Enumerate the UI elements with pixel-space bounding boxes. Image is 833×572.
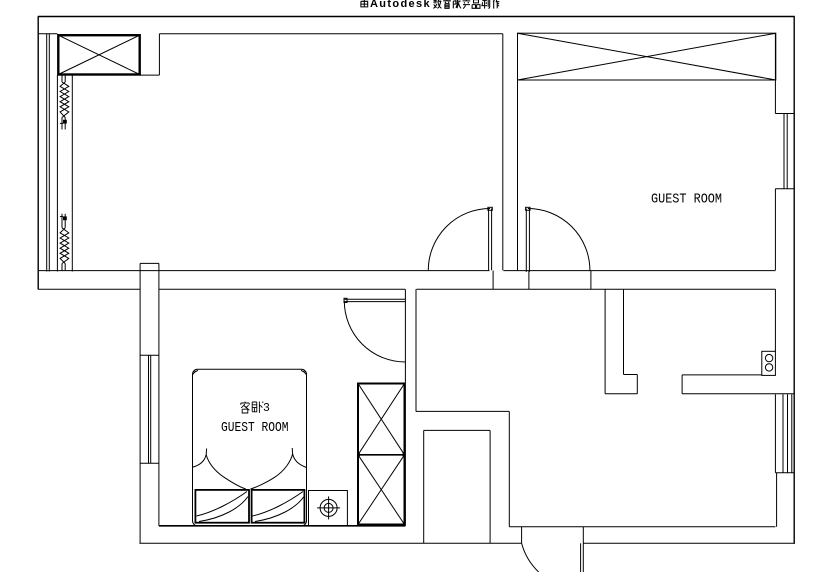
svg-text:GUEST ROOM: GUEST ROOM [651, 193, 722, 208]
svg-text:GUEST ROOM: GUEST ROOM [221, 421, 289, 436]
